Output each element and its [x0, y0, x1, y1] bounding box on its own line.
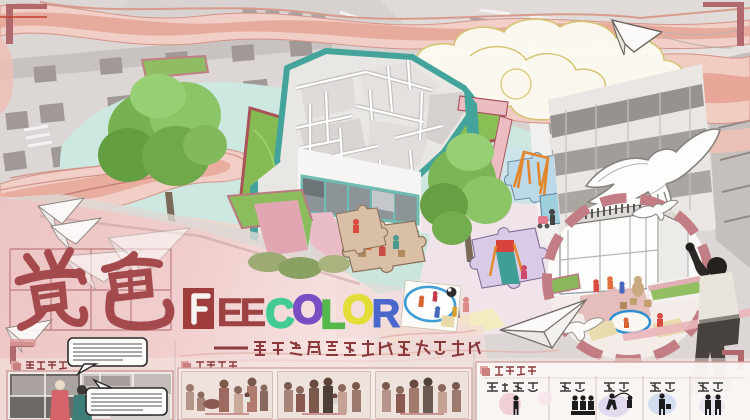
svg-text:R: R — [372, 292, 401, 336]
svg-text:C: C — [266, 292, 295, 336]
svg-text:O: O — [292, 288, 323, 332]
svg-text:E: E — [240, 291, 267, 335]
svg-text:O: O — [342, 288, 373, 332]
